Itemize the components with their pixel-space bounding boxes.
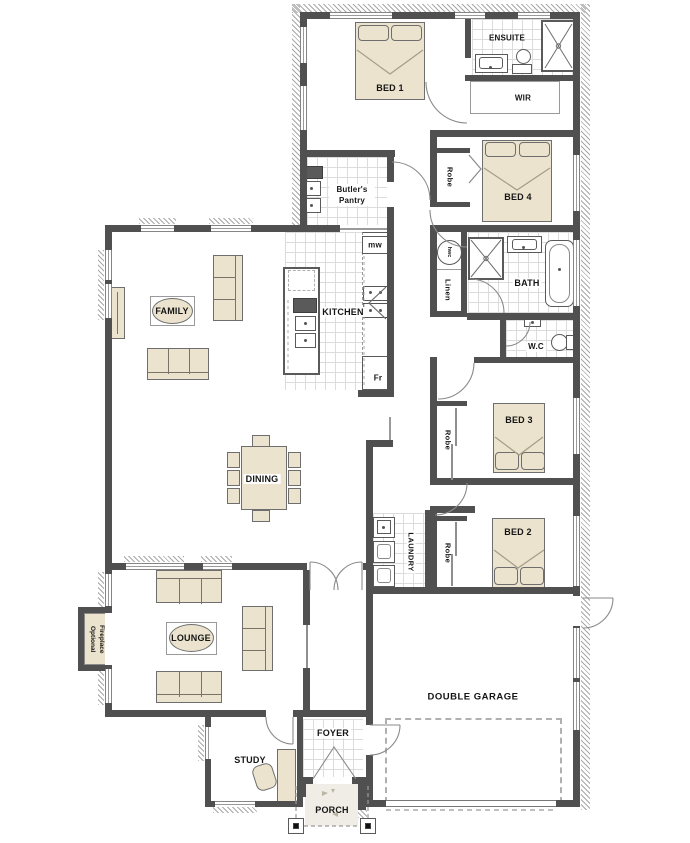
porch-post-core xyxy=(293,823,299,829)
dryer-inner xyxy=(377,568,391,583)
wall xyxy=(112,563,126,570)
wall xyxy=(363,563,373,570)
door-opening xyxy=(430,207,437,225)
study-desk xyxy=(277,749,296,802)
sofa xyxy=(242,606,273,671)
dishwasher-outline xyxy=(288,270,315,291)
window-sill-hatch xyxy=(198,725,204,761)
wall xyxy=(387,232,394,397)
nib-wall xyxy=(389,417,391,440)
dining-chair xyxy=(288,470,301,486)
wall xyxy=(366,570,373,807)
window xyxy=(205,727,211,759)
family-label: FAMILY xyxy=(155,306,188,316)
window-sill-hatch xyxy=(209,218,253,224)
wall xyxy=(358,777,366,810)
window xyxy=(573,240,580,306)
window xyxy=(105,250,112,280)
hwc-label: hwc xyxy=(446,247,452,258)
window-sill-hatch xyxy=(201,556,232,562)
window-sill-hatch xyxy=(124,556,184,562)
bed2-robe-label: Robe xyxy=(444,543,453,563)
microwave-label: mw xyxy=(368,241,382,250)
wall xyxy=(461,232,467,317)
sofa xyxy=(156,671,222,703)
wall xyxy=(387,225,394,232)
cladding-hatch-right xyxy=(581,4,590,810)
pillow xyxy=(520,567,544,585)
wc-label: W.C xyxy=(526,342,546,352)
window xyxy=(573,628,580,678)
tap-icon xyxy=(382,526,385,529)
bath-label: BATH xyxy=(512,278,541,288)
wall xyxy=(366,587,580,594)
wall xyxy=(432,401,467,406)
wall xyxy=(300,225,340,232)
shelf-line xyxy=(437,269,461,270)
wall xyxy=(303,570,310,625)
wall xyxy=(432,516,467,521)
sliding-door xyxy=(455,408,457,446)
dining-chair xyxy=(252,510,270,522)
tap-icon xyxy=(304,322,307,325)
linen-label: Linen xyxy=(444,279,453,301)
wir-label: WIR xyxy=(515,94,531,103)
window-sill-hatch xyxy=(213,807,257,813)
dining-label: DINING xyxy=(244,474,281,484)
porch-label: PORCH xyxy=(313,805,351,815)
wall xyxy=(430,311,467,317)
window xyxy=(105,284,112,318)
fireplace-opening xyxy=(105,613,112,665)
door-opening xyxy=(573,596,580,626)
bed4-label: BED 4 xyxy=(504,192,532,202)
window xyxy=(300,86,307,130)
wall xyxy=(232,563,307,570)
study-label: STUDY xyxy=(234,755,266,765)
foyer-label: FOYER xyxy=(315,728,351,738)
window xyxy=(211,225,251,232)
tap-icon xyxy=(310,204,313,207)
floor-plan: BED 1 ENSUITE WIR BED 4 Robe Butler's Pa… xyxy=(0,0,690,843)
kitchen-label: KITCHEN xyxy=(320,307,365,317)
window xyxy=(573,516,580,586)
cased-opening xyxy=(340,228,387,230)
shower xyxy=(541,20,576,72)
wall xyxy=(432,148,470,153)
fridge-label: Fr xyxy=(374,374,382,383)
wall xyxy=(299,777,306,797)
wall xyxy=(105,710,212,717)
wall xyxy=(358,390,394,397)
door-opening xyxy=(366,725,373,755)
fireplace-wall xyxy=(78,607,84,671)
wall xyxy=(387,157,394,182)
cooktop xyxy=(363,303,388,318)
dining-chair xyxy=(252,435,270,447)
bed3-robe-label: Robe xyxy=(444,430,453,450)
wall xyxy=(205,710,266,717)
wall xyxy=(425,510,432,594)
dining-chair xyxy=(227,470,240,486)
garage-label: DOUBLE GARAGE xyxy=(428,692,519,703)
garage-door xyxy=(386,800,556,807)
door-opening xyxy=(437,357,474,363)
sofa xyxy=(213,255,243,321)
bathtub-inner xyxy=(549,244,570,303)
window-sill-hatch xyxy=(98,572,104,608)
dining-chair xyxy=(227,488,240,504)
wall xyxy=(430,130,580,137)
wall xyxy=(105,225,307,232)
pillow xyxy=(495,452,519,470)
wall xyxy=(465,75,580,81)
wall xyxy=(432,225,580,232)
window-sill-hatch xyxy=(98,667,104,705)
window xyxy=(518,12,550,19)
window-sill-hatch xyxy=(139,218,176,224)
tap-icon xyxy=(489,66,492,69)
sofa xyxy=(156,570,222,603)
window xyxy=(215,801,255,807)
cooktop xyxy=(363,286,388,301)
wall xyxy=(467,313,580,320)
car-space-outline xyxy=(385,718,562,803)
pillow xyxy=(519,142,550,157)
window xyxy=(573,398,580,454)
wall xyxy=(184,563,203,570)
window xyxy=(300,27,307,63)
wall xyxy=(303,668,310,717)
shower xyxy=(468,237,504,280)
fireplace-label: Optional Fireplace xyxy=(88,611,106,667)
window xyxy=(126,563,184,570)
pillow xyxy=(521,452,545,470)
tap-icon xyxy=(531,321,534,324)
pillow xyxy=(391,25,422,41)
pantry-label: Butler's Pantry xyxy=(329,184,375,206)
wall xyxy=(366,440,373,570)
tap-icon xyxy=(522,246,525,249)
dining-chair xyxy=(227,452,240,468)
sofa xyxy=(147,348,209,380)
lounge-label: LOUNGE xyxy=(171,633,211,643)
wall xyxy=(430,232,437,317)
window xyxy=(330,12,392,19)
bed1-label: BED 1 xyxy=(376,83,404,93)
laundry-label: LAUNDRY xyxy=(407,530,416,573)
dining-chair xyxy=(288,488,301,504)
wall xyxy=(465,19,471,58)
study-chair xyxy=(250,761,278,792)
dining-chair xyxy=(288,452,301,468)
cavity-slider-door xyxy=(306,625,308,668)
porch-post-core xyxy=(365,823,371,829)
bed2-label: BED 2 xyxy=(504,527,532,537)
wall xyxy=(366,800,386,807)
window-sill-hatch xyxy=(98,250,104,320)
tap-icon xyxy=(310,187,313,190)
wall xyxy=(556,800,580,807)
washing-machine-inner xyxy=(377,544,391,559)
window xyxy=(141,225,174,232)
ensuite-label: ENSUITE xyxy=(489,34,525,43)
bed4-robe-label: Robe xyxy=(446,167,455,187)
wall xyxy=(300,150,395,157)
pillow xyxy=(358,25,389,41)
pillow xyxy=(485,142,516,157)
sink-drainer xyxy=(293,298,317,313)
bifold-robe-door xyxy=(469,155,481,183)
window xyxy=(573,155,580,211)
cladding-hatch-left-wing xyxy=(292,4,300,228)
toilet-bowl xyxy=(516,49,531,64)
window xyxy=(573,682,580,730)
window xyxy=(203,563,232,570)
toilet-cistern xyxy=(512,64,532,74)
sliding-door xyxy=(455,522,457,556)
tap-icon xyxy=(304,339,307,342)
tv-unit-line xyxy=(117,292,118,334)
wall xyxy=(366,440,393,447)
bed3-label: BED 3 xyxy=(505,415,533,425)
window xyxy=(105,574,112,606)
window xyxy=(105,669,112,703)
wall xyxy=(432,202,470,207)
tap-icon xyxy=(558,268,561,271)
wall xyxy=(430,363,437,485)
wall xyxy=(430,506,475,513)
window xyxy=(455,12,485,19)
pillow xyxy=(494,567,518,585)
